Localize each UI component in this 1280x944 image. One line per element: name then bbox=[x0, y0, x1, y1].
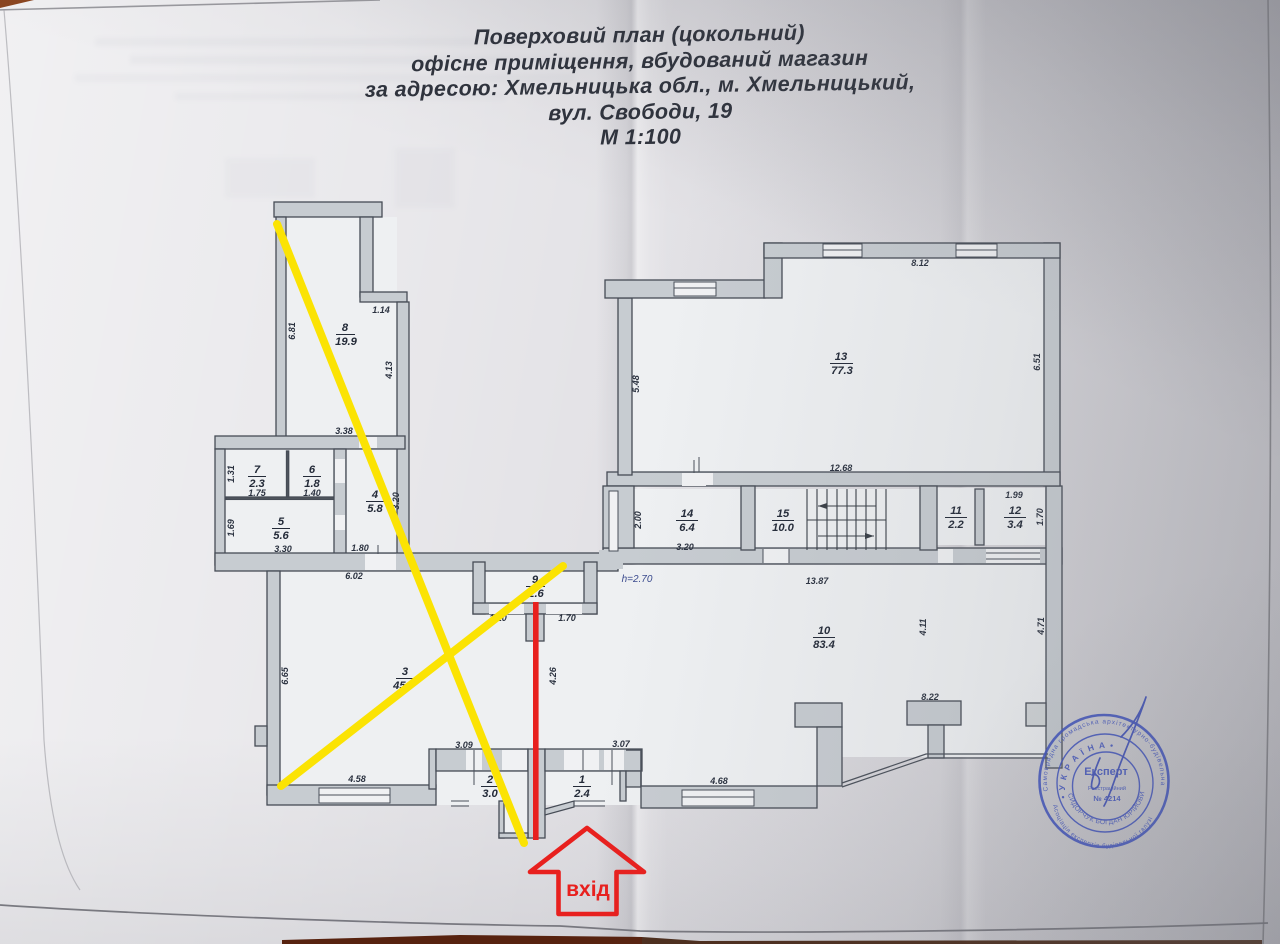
svg-text:3.38: 3.38 bbox=[335, 426, 353, 436]
svg-text:15: 15 bbox=[777, 508, 790, 520]
svg-text:8.22: 8.22 bbox=[921, 692, 939, 702]
svg-text:3: 3 bbox=[402, 666, 409, 678]
svg-text:4: 4 bbox=[371, 489, 379, 501]
svg-text:1.80: 1.80 bbox=[351, 543, 369, 553]
svg-text:77.3: 77.3 bbox=[831, 365, 854, 377]
svg-text:5: 5 bbox=[278, 516, 285, 528]
svg-text:4.11: 4.11 bbox=[918, 619, 928, 637]
svg-text:6.81: 6.81 bbox=[287, 322, 297, 340]
svg-text:6.02: 6.02 bbox=[345, 571, 363, 581]
svg-text:83.4: 83.4 bbox=[813, 639, 836, 651]
svg-text:5.6: 5.6 bbox=[273, 530, 289, 542]
svg-text:4.71: 4.71 bbox=[1036, 617, 1046, 636]
svg-text:13.87: 13.87 bbox=[806, 576, 830, 586]
svg-text:3.30: 3.30 bbox=[274, 544, 292, 554]
svg-text:6: 6 bbox=[309, 464, 316, 476]
svg-text:2: 2 bbox=[486, 774, 494, 786]
svg-text:1.99: 1.99 bbox=[1005, 490, 1023, 500]
svg-text:Експерт: Експерт bbox=[1084, 766, 1128, 778]
svg-text:3.4: 3.4 bbox=[1007, 519, 1023, 531]
svg-text:1: 1 bbox=[579, 774, 585, 786]
svg-text:3.20: 3.20 bbox=[676, 542, 694, 552]
svg-text:вхід: вхід bbox=[566, 878, 610, 901]
svg-text:3.07: 3.07 bbox=[612, 739, 631, 749]
svg-text:4.26: 4.26 bbox=[548, 666, 558, 686]
svg-text:5.8: 5.8 bbox=[367, 503, 383, 515]
svg-text:3.0: 3.0 bbox=[482, 788, 498, 800]
svg-text:1.70: 1.70 bbox=[1035, 508, 1045, 526]
svg-text:4.58: 4.58 bbox=[347, 774, 366, 784]
svg-text:h=2.70: h=2.70 bbox=[622, 574, 653, 585]
svg-text:1.75: 1.75 bbox=[248, 488, 267, 498]
svg-text:1.40: 1.40 bbox=[303, 488, 321, 498]
svg-text:8.12: 8.12 bbox=[911, 258, 929, 268]
svg-text:4.68: 4.68 bbox=[709, 776, 728, 786]
svg-text:6.65: 6.65 bbox=[280, 666, 290, 685]
svg-text:11: 11 bbox=[950, 505, 962, 517]
svg-text:2.2: 2.2 bbox=[947, 519, 964, 531]
svg-text:5.48: 5.48 bbox=[631, 375, 641, 393]
svg-text:12.68: 12.68 bbox=[830, 463, 853, 473]
svg-text:6.51: 6.51 bbox=[1032, 353, 1042, 371]
svg-text:10.0: 10.0 bbox=[772, 522, 795, 534]
svg-text:10: 10 bbox=[818, 625, 831, 637]
svg-text:6.4: 6.4 bbox=[679, 522, 695, 534]
svg-text:2.00: 2.00 bbox=[633, 511, 643, 530]
svg-text:Асоціація експертів будівельно: Асоціація експертів будівельної галузі bbox=[1051, 804, 1155, 850]
svg-text:12: 12 bbox=[1009, 505, 1022, 517]
svg-text:8: 8 bbox=[342, 322, 349, 334]
svg-text:1.31: 1.31 bbox=[226, 465, 236, 483]
svg-text:2.4: 2.4 bbox=[573, 788, 590, 800]
svg-text:13: 13 bbox=[835, 351, 848, 363]
svg-text:4.13: 4.13 bbox=[384, 361, 394, 380]
svg-text:7: 7 bbox=[254, 464, 261, 476]
svg-text:3.09: 3.09 bbox=[455, 740, 473, 750]
svg-text:1.14: 1.14 bbox=[372, 305, 390, 315]
svg-text:1.69: 1.69 bbox=[226, 519, 236, 537]
svg-text:19.9: 19.9 bbox=[335, 336, 358, 348]
svg-text:14: 14 bbox=[681, 508, 694, 520]
svg-text:1.70: 1.70 bbox=[558, 613, 576, 623]
